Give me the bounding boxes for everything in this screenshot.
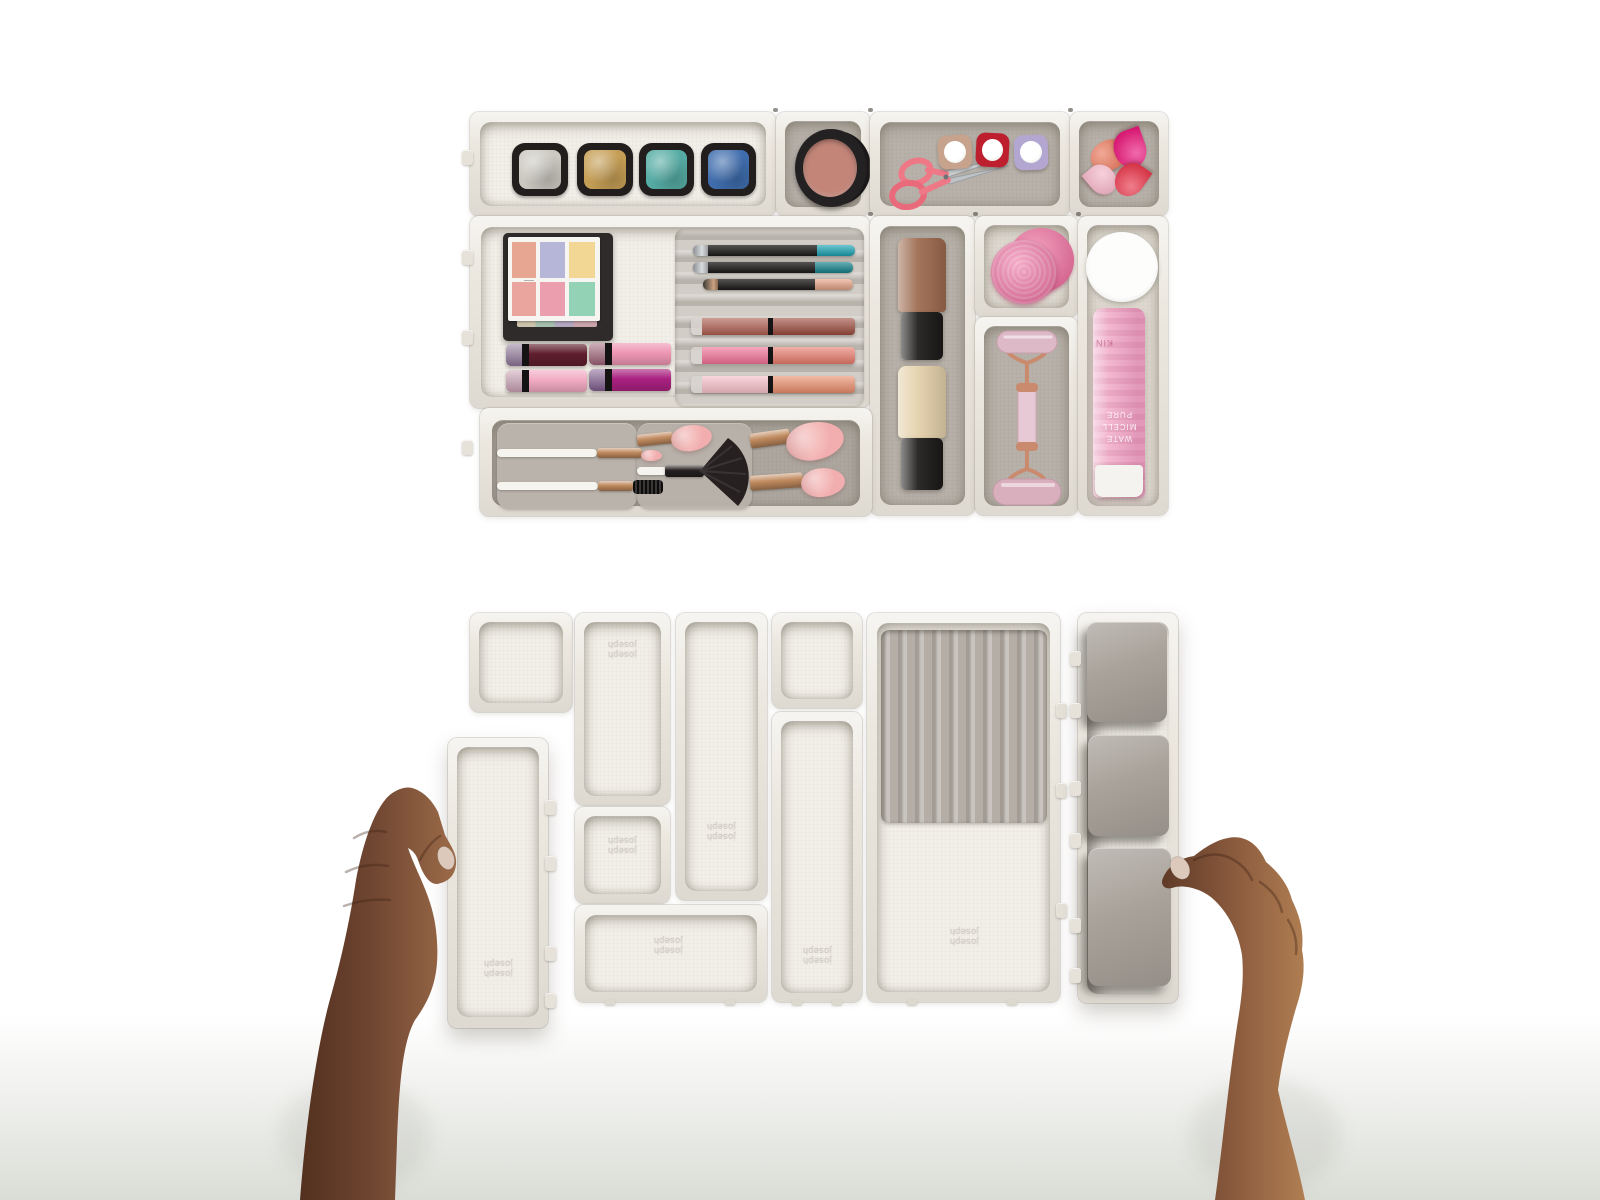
fan-brush-handle <box>637 467 667 475</box>
empty-box-large: joseph joseph <box>867 613 1060 1002</box>
pencil-end-teal-dark <box>815 262 853 273</box>
bottle-side-text: KIN <box>1095 338 1113 348</box>
connector-clip <box>462 150 473 165</box>
brush-tray <box>480 408 872 516</box>
connector-stud <box>868 108 873 112</box>
box-foot <box>792 1000 802 1005</box>
empty-box-small-2: joseph joseph <box>575 807 670 903</box>
bottle-cap <box>1095 465 1143 497</box>
bottle-label-line2: MICELL <box>1097 420 1141 432</box>
micellar-water-bottle: KIN WATE MICELL PURE <box>1093 308 1145 498</box>
pencil-wood-tip <box>703 279 718 290</box>
nail-polish-lavender-cap <box>1020 141 1043 164</box>
lipstick-ring <box>522 344 529 366</box>
eyeshadow-teal <box>646 150 687 189</box>
box-foot <box>1007 1000 1017 1005</box>
lip-gloss-rust <box>691 318 855 335</box>
eyeshadow-pan-teal <box>639 143 694 196</box>
empty-box-tall: joseph joseph <box>575 613 670 805</box>
fan-brush-bristles <box>694 434 756 510</box>
connector-clip <box>545 993 556 1008</box>
bottle-label-text: WATE MICELL PURE <box>1097 408 1141 444</box>
lipstick-ring <box>522 370 529 392</box>
nail-polish-nude-cap <box>943 140 966 163</box>
connector-clip <box>1070 968 1081 983</box>
pencil-body <box>718 279 815 290</box>
embossed-logo: joseph joseph <box>599 837 645 857</box>
ridged-insert <box>881 630 1047 823</box>
lipstick-ring <box>605 343 612 365</box>
product-photo-canvas: KIN WATE MICELL PURE <box>0 0 1600 1200</box>
connector-clip <box>462 250 473 265</box>
liquid-lipstick-pink <box>589 343 671 365</box>
nail-polish-lavender <box>1013 134 1048 170</box>
connector-clip <box>462 330 473 345</box>
eyeshadow-pan-silver <box>512 143 568 196</box>
palette-swatch-pink2 <box>540 282 565 316</box>
lipstick-body <box>529 370 587 392</box>
left-hand-outline <box>300 788 456 1200</box>
pencil-body <box>708 245 817 256</box>
brush-handle-1 <box>497 449 597 457</box>
foundation-stick-light-cap <box>898 366 946 438</box>
connector-clip <box>1070 651 1081 666</box>
pencil-metal-tip <box>693 245 708 256</box>
connector-clip <box>545 856 556 871</box>
palette-swatch-salmon <box>512 242 536 278</box>
eyeshadow-gold <box>584 150 626 189</box>
palette-swatch-pink1 <box>512 282 536 316</box>
lipstick-ring <box>605 369 612 391</box>
empty-box-cavity <box>479 622 563 703</box>
nail-polish-nude <box>937 134 973 170</box>
connector-stud <box>868 212 873 216</box>
box-foot <box>832 1000 842 1005</box>
mascara-spoolie <box>633 480 663 494</box>
lip-gloss-pink <box>691 347 855 364</box>
eyeshadow-tray <box>470 112 776 216</box>
embossed-logo: joseph joseph <box>599 641 645 661</box>
brush-ferrule-1 <box>597 448 642 458</box>
embossed-logo: joseph joseph <box>645 937 691 957</box>
foundation-stick-deep-cap <box>898 238 946 312</box>
liquid-lipstick-burgundy <box>506 344 587 366</box>
lipstick-tip <box>589 369 605 391</box>
brush-ferrule-2 <box>598 481 633 491</box>
palette-swatch-mint <box>569 282 595 316</box>
lipstick-body <box>612 343 671 365</box>
lipstick-body <box>612 369 671 391</box>
embossed-logo: joseph joseph <box>794 947 840 967</box>
lip-gloss-peach <box>691 376 855 393</box>
facial-sponge-front <box>991 240 1057 304</box>
connector-stud <box>1068 108 1073 112</box>
eyeshadow-pan-blue <box>701 143 756 196</box>
gloss-tip <box>691 376 702 393</box>
color-correcting-palette-face <box>508 237 600 321</box>
right-hand <box>1130 820 1330 1200</box>
liquid-lipstick-lightpink <box>506 370 587 392</box>
empty-box-long-2: joseph joseph <box>772 712 862 1002</box>
gloss-left <box>702 318 768 335</box>
box-foot <box>907 1000 917 1005</box>
brush-rest-panel-left <box>497 423 637 509</box>
gloss-left <box>702 347 768 364</box>
left-hand <box>270 740 480 1200</box>
color-correcting-palette-case <box>503 233 613 341</box>
gloss-left <box>702 376 768 393</box>
rose-quartz-roller <box>989 327 1065 507</box>
pencil-end-teal <box>817 245 855 256</box>
eyeshadow-pan-gold <box>577 143 633 196</box>
lipstick-tip <box>589 343 605 365</box>
liquid-lipstick-magenta <box>589 369 671 391</box>
blush-powder <box>803 139 857 197</box>
connector-clip <box>1070 918 1081 933</box>
compact-mirror <box>1086 232 1158 302</box>
roller-tray <box>975 317 1078 515</box>
empty-box-cavity <box>781 622 853 699</box>
box-foot <box>725 1000 735 1005</box>
foundation-stick-deep-body <box>901 312 943 360</box>
empty-box-small-1 <box>470 613 572 712</box>
eyeshadow-blue <box>708 150 749 189</box>
pencil-gloss-insert <box>675 228 864 406</box>
eyeshadow-silver <box>519 150 561 189</box>
table-surface <box>0 1015 1600 1200</box>
eye-pencil-teal2 <box>693 262 853 273</box>
connector-stud <box>773 108 778 112</box>
sponge-tray <box>1070 112 1168 216</box>
right-hand-outline <box>1162 837 1305 1200</box>
connector-clip <box>462 440 473 455</box>
embossed-logo: joseph joseph <box>698 823 744 843</box>
bottle-label-line1: WATE <box>1097 432 1141 444</box>
connector-stud <box>1076 212 1081 216</box>
empty-box-long-1: joseph joseph <box>676 613 767 900</box>
divider-flap-1 <box>1087 622 1167 722</box>
bottle-label-line3: PURE <box>1097 408 1141 420</box>
brush-handle-2 <box>497 482 598 490</box>
gloss-tip <box>691 318 702 335</box>
connector-clip <box>545 946 556 961</box>
manicure-tray <box>870 112 1070 216</box>
nail-polish-red-cap <box>981 138 1003 161</box>
connector-stud <box>973 212 978 216</box>
palette-swatch-yellow <box>569 242 595 278</box>
palette-lip-tray <box>470 216 870 408</box>
embossed-logo: joseph joseph <box>941 928 987 948</box>
connector-clip <box>1070 833 1081 848</box>
gloss-right <box>773 376 855 393</box>
gloss-right <box>773 347 855 364</box>
mirror-bottle-tray: KIN WATE MICELL PURE <box>1078 216 1168 515</box>
pencil-end-nude <box>815 279 853 290</box>
nail-polish-red <box>975 132 1010 168</box>
pencil-metal-tip <box>693 262 708 273</box>
connector-clip <box>1056 703 1067 718</box>
connector-clip <box>1056 903 1067 918</box>
empty-box-cavity <box>685 622 758 891</box>
empty-box-small-3 <box>772 613 862 708</box>
palette-swatch-periwinkle <box>540 242 565 278</box>
round-sponge-tray <box>975 216 1078 317</box>
lipstick-tip <box>506 344 522 366</box>
empty-box-wide: joseph joseph <box>575 905 767 1002</box>
box-foot <box>605 1000 615 1005</box>
connector-clip <box>1056 783 1067 798</box>
connector-clip <box>545 800 556 815</box>
connector-clip <box>1070 781 1081 796</box>
lipstick-tip <box>506 370 522 392</box>
gloss-tip <box>691 347 702 364</box>
pencil-body <box>708 262 815 273</box>
lipstick-body <box>529 344 587 366</box>
embossed-logo: joseph joseph <box>475 960 521 980</box>
foundation-tray <box>870 216 975 515</box>
eye-pencil-teal1 <box>693 245 855 256</box>
blush-tray <box>776 112 870 216</box>
gloss-right <box>773 318 855 335</box>
eye-pencil-nude <box>703 279 853 290</box>
foundation-stick-light-body <box>901 438 943 490</box>
connector-clip <box>1070 703 1081 718</box>
